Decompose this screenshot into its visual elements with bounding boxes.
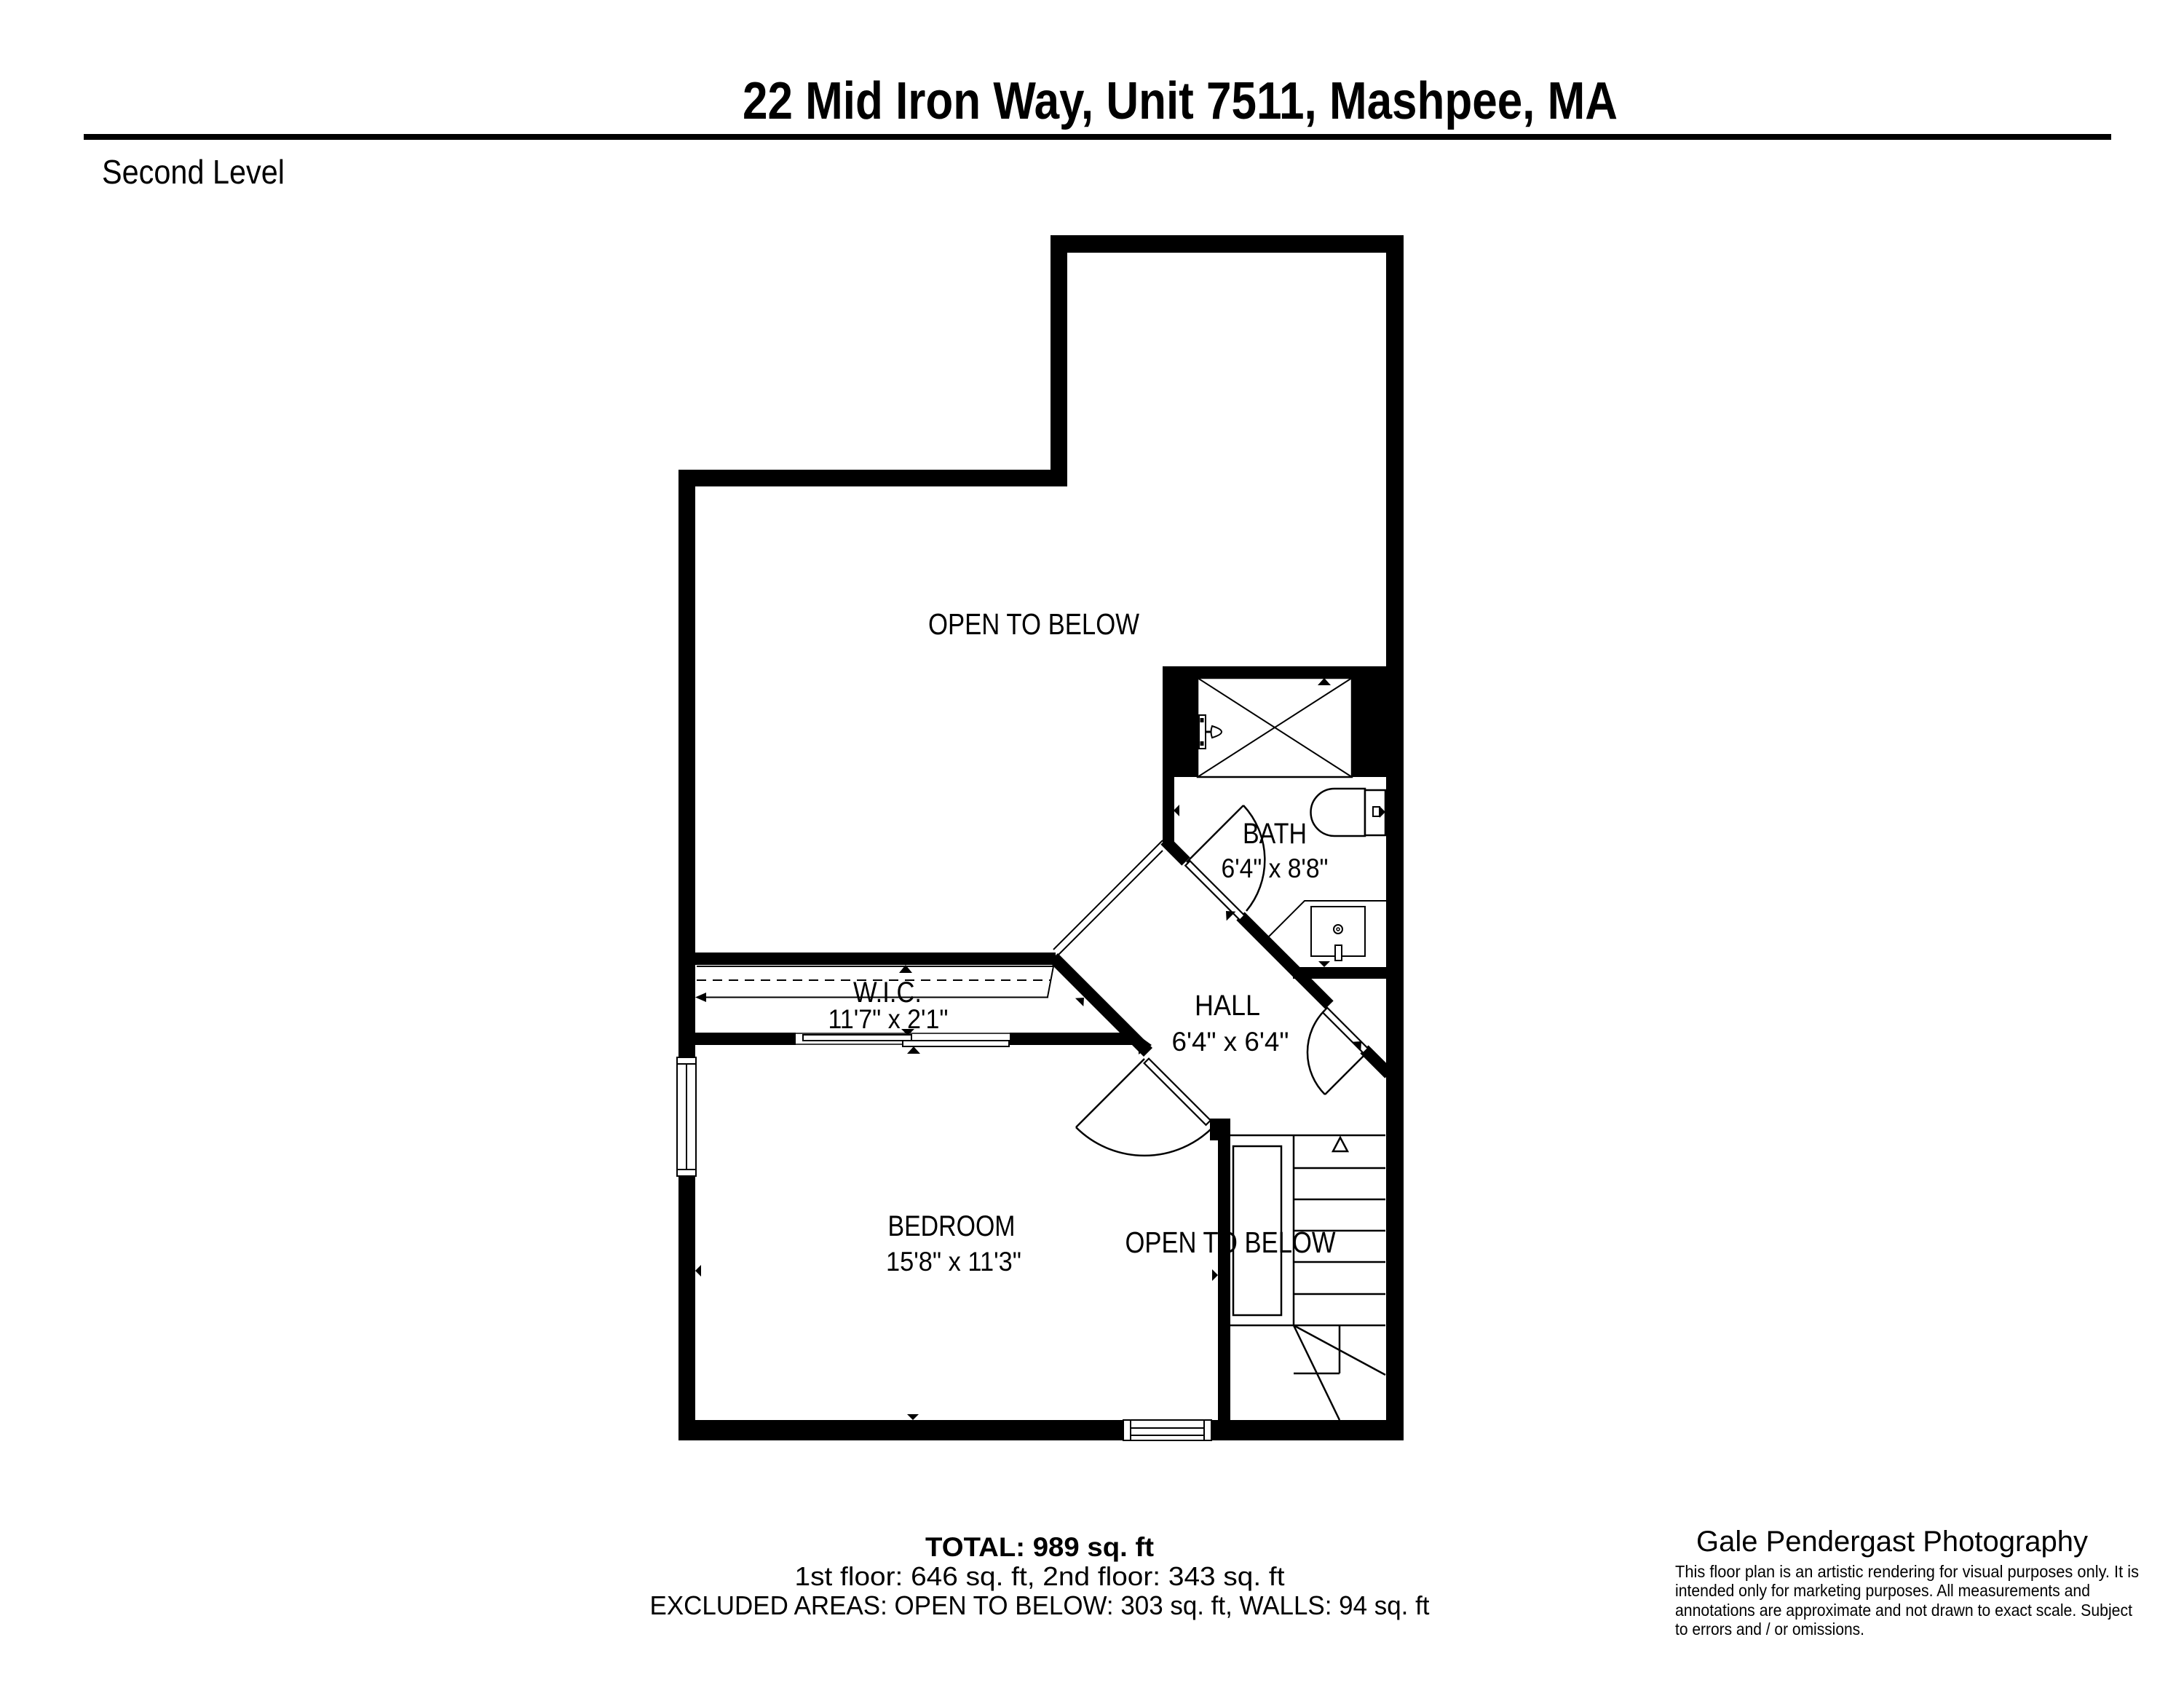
svg-text:TOTAL: 989 sq. ft: TOTAL: 989 sq. ft	[925, 1532, 1154, 1562]
svg-text:BEDROOM: BEDROOM	[888, 1210, 1016, 1242]
svg-text:Second Level: Second Level	[102, 153, 285, 191]
svg-text:OPEN TO BELOW: OPEN TO BELOW	[1125, 1226, 1336, 1259]
svg-text:11'7" x 2'1": 11'7" x 2'1"	[828, 1004, 949, 1034]
svg-text:This floor plan is an artistic: This floor plan is an artistic rendering…	[1675, 1562, 2139, 1581]
svg-text:HALL: HALL	[1195, 990, 1260, 1022]
svg-text:EXCLUDED AREAS: OPEN TO BELOW:: EXCLUDED AREAS: OPEN TO BELOW: 303 sq. f…	[650, 1590, 1430, 1620]
svg-text:intended only for marketing pu: intended only for marketing purposes. Al…	[1675, 1581, 2090, 1600]
svg-text:6'4" x 8'8": 6'4" x 8'8"	[1222, 853, 1329, 883]
svg-text:annotations are approximate an: annotations are approximate and not draw…	[1675, 1601, 2133, 1620]
svg-text:to errors and / or omissions.: to errors and / or omissions.	[1675, 1620, 1864, 1638]
svg-text:1st floor: 646 sq. ft, 2nd flo: 1st floor: 646 sq. ft, 2nd floor: 343 sq…	[795, 1561, 1285, 1591]
svg-text:OPEN TO BELOW: OPEN TO BELOW	[928, 607, 1139, 641]
svg-text:6'4" x 6'4": 6'4" x 6'4"	[1172, 1027, 1289, 1057]
svg-text:Gale Pendergast Photography: Gale Pendergast Photography	[1696, 1526, 2088, 1558]
svg-text:15'8" x 11'3": 15'8" x 11'3"	[886, 1247, 1021, 1277]
svg-text:BATH: BATH	[1243, 818, 1307, 850]
svg-text:22 Mid Iron Way, Unit 7511, Ma: 22 Mid Iron Way, Unit 7511, Mashpee, MA	[743, 72, 1618, 130]
